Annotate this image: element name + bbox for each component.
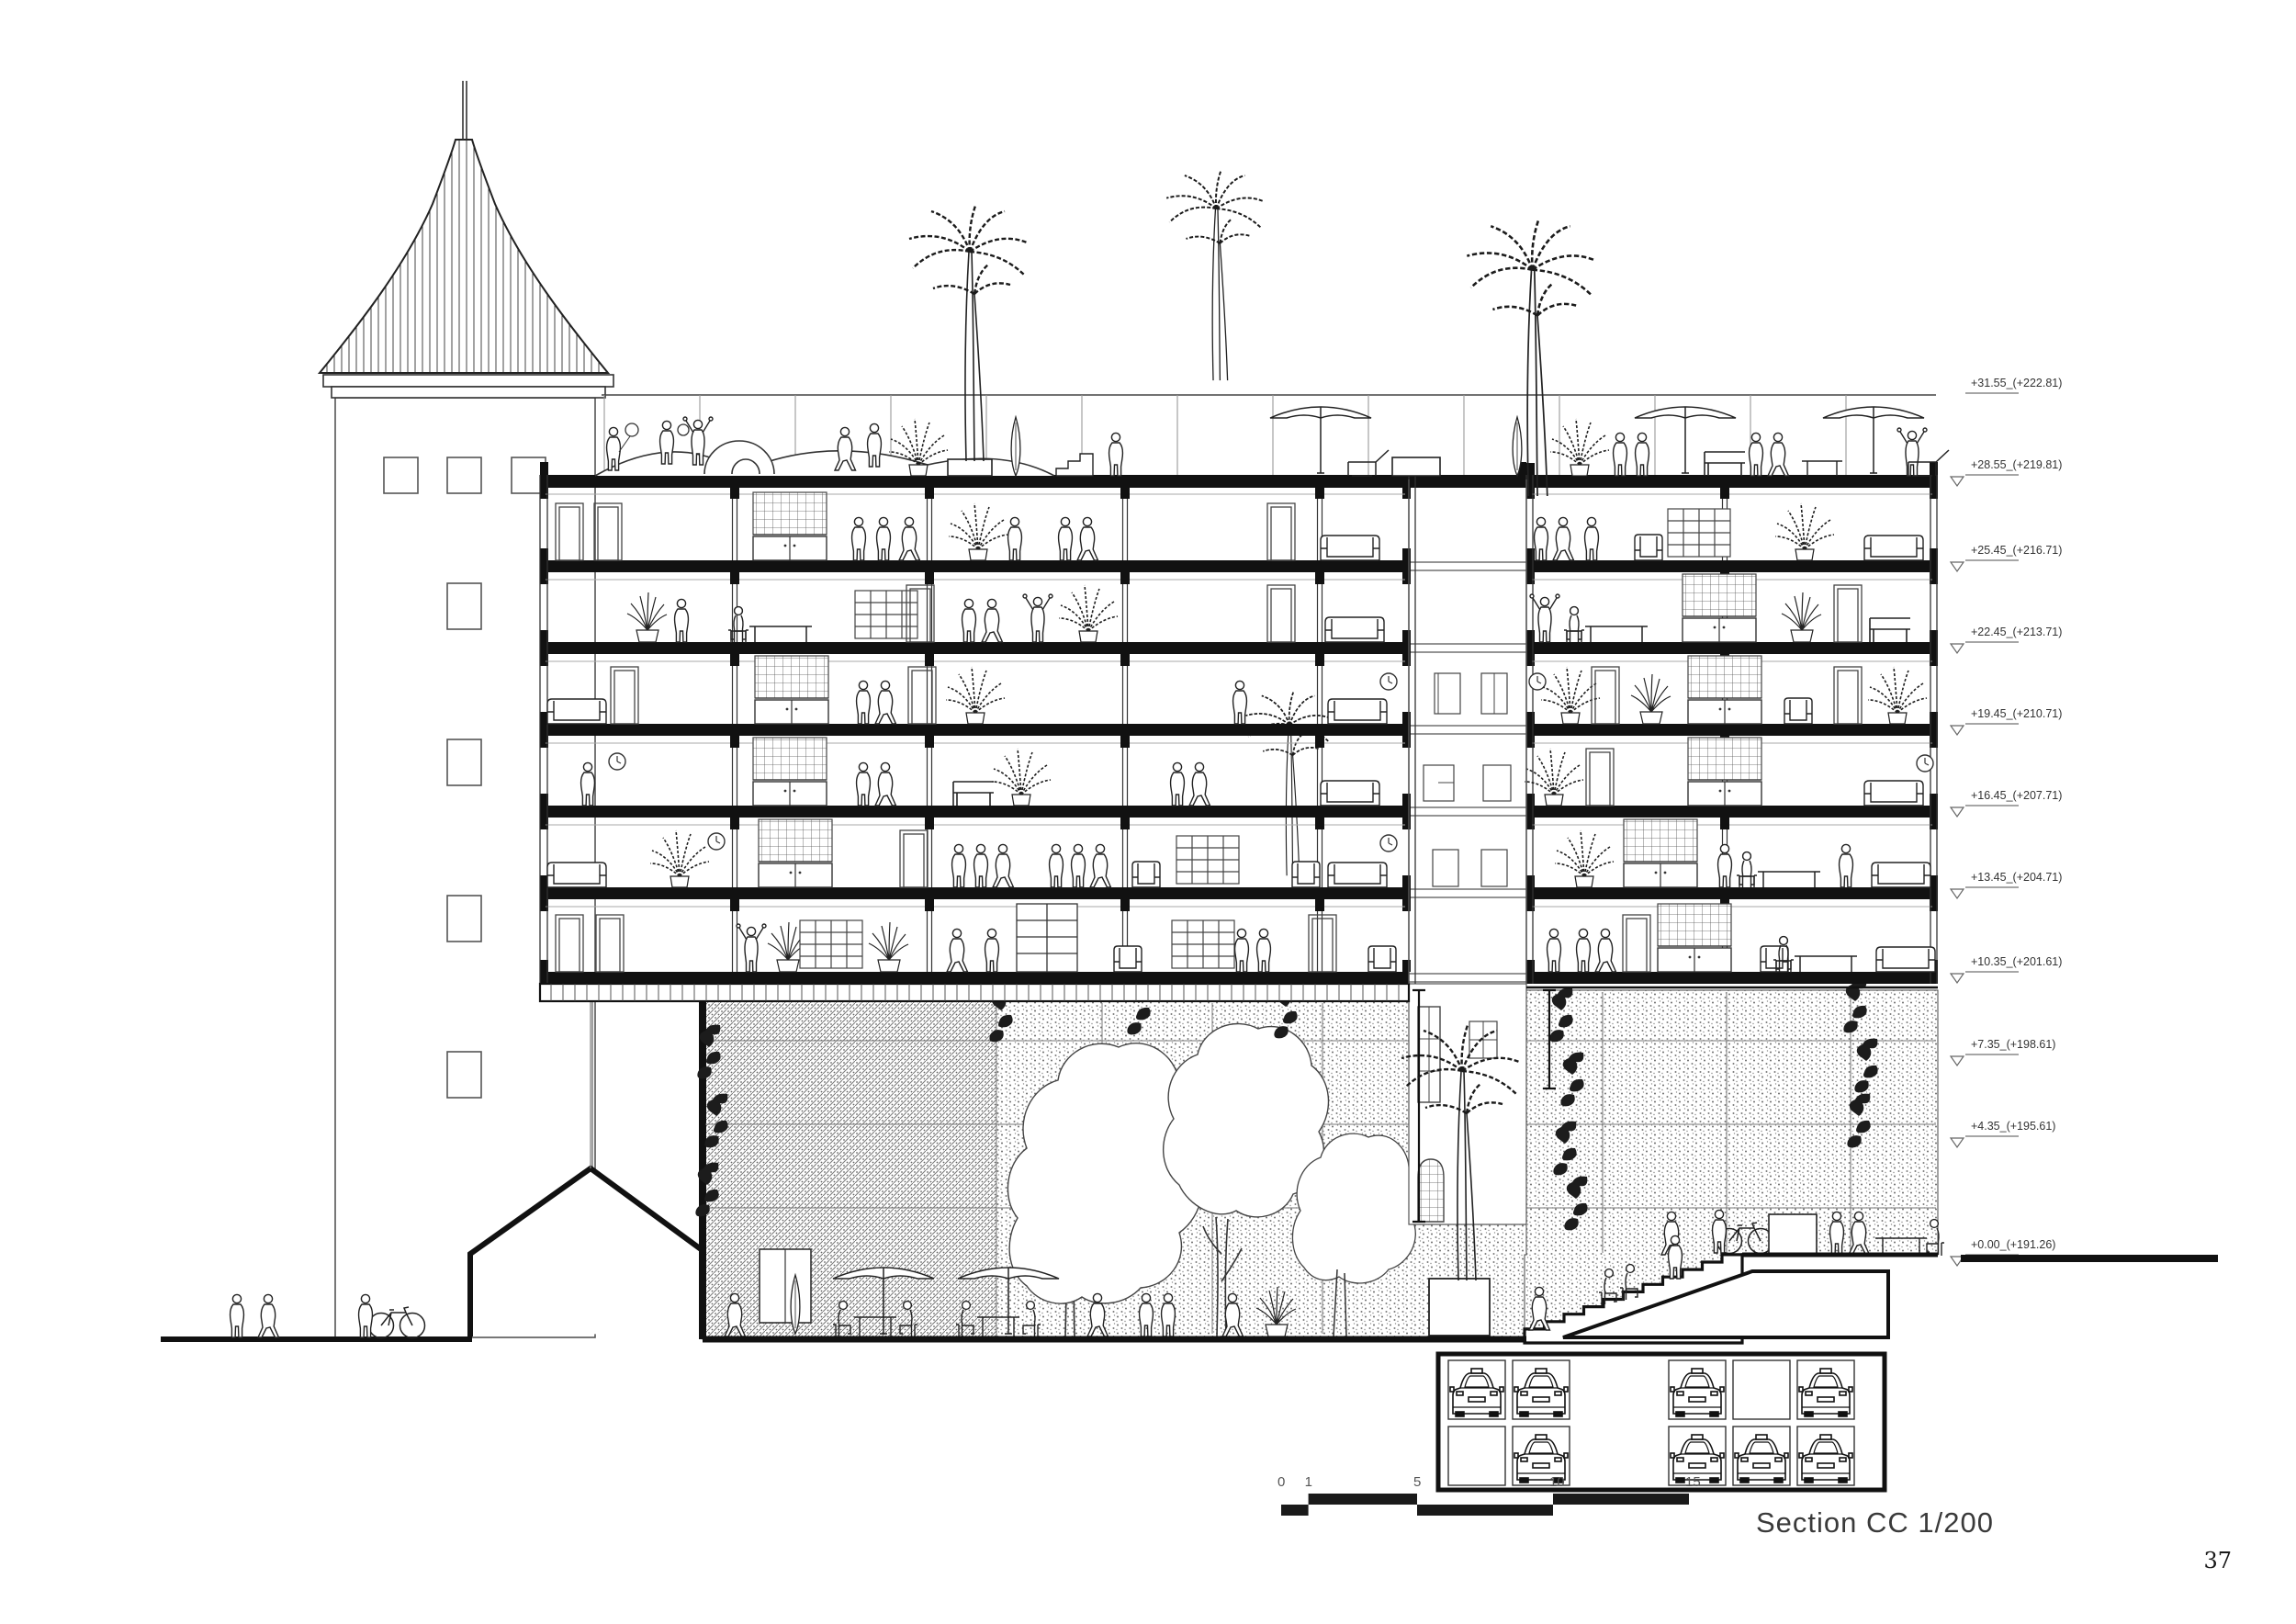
doorF-symbol (1592, 667, 1619, 724)
floor-slab (540, 806, 1409, 818)
personW-symbol (1090, 844, 1111, 887)
armch-symbol (1635, 535, 1662, 560)
sofa-symbol (1321, 781, 1379, 806)
sofa-symbol (1321, 536, 1379, 560)
elevation-label: +31.55_(+222.81) (1971, 377, 2062, 389)
agave-symbol (1631, 674, 1671, 724)
clockS-symbol (1380, 673, 1397, 690)
kit-symbol (753, 738, 827, 806)
datum-triangle-icon (1951, 562, 1964, 571)
core-strip (1409, 479, 1526, 984)
personS-symbol (1233, 681, 1247, 724)
armch-symbol (1784, 698, 1812, 724)
floor-slab (1526, 887, 1938, 899)
datum-triangle-icon (1951, 889, 1964, 898)
armch-symbol (1292, 862, 1320, 887)
drawing-sheet: +31.55_(+222.81)+28.55_(+219.81)+25.45_(… (0, 0, 2296, 1624)
personS-symbol (1235, 929, 1249, 972)
doorF-symbol (1623, 915, 1650, 972)
sofa-symbol (1328, 863, 1387, 887)
personA-symbol (1023, 594, 1052, 642)
personW-symbol (1077, 517, 1098, 560)
personS-symbol (1718, 844, 1732, 887)
scale-tick-label: 1 (1305, 1474, 1312, 1490)
doorF-symbol (908, 667, 936, 724)
doorF-symbol (594, 503, 622, 560)
winG-symbol (1172, 920, 1234, 968)
elevation-label: +19.45_(+210.71) (1971, 707, 2062, 720)
personW-symbol (947, 929, 968, 972)
floor-slab (540, 887, 1409, 899)
clockS-symbol (609, 753, 625, 770)
parking-stall (1448, 1427, 1505, 1485)
datum-triangle-icon (1951, 477, 1964, 486)
personW-symbol (899, 517, 920, 560)
doorF-symbol (1834, 667, 1862, 724)
elevation-markers: +31.55_(+222.81)+28.55_(+219.81)+25.45_(… (1951, 377, 2218, 1266)
doorF-symbol (906, 585, 934, 642)
scale-tick-label: 10 (1549, 1474, 1565, 1490)
scale-tick-label: 0 (1277, 1474, 1285, 1490)
fern-symbol (946, 667, 1005, 724)
elevation-label: +0.00_(+191.26) (1971, 1238, 2055, 1251)
scale-bar-segment (1281, 1505, 1309, 1516)
tower-window (384, 457, 418, 493)
parking-stall (1733, 1360, 1790, 1419)
fern-symbol (992, 749, 1051, 806)
personS-symbol (985, 929, 999, 972)
section-drawing: +31.55_(+222.81)+28.55_(+219.81)+25.45_(… (0, 0, 2296, 1624)
tower-window (447, 583, 481, 629)
elevation-marker: +7.35_(+198.61) (1951, 1038, 2055, 1066)
doorF-symbol (1834, 585, 1862, 642)
doorF-symbol (1267, 503, 1295, 560)
personW-symbol (1553, 517, 1574, 560)
winG-symbol (800, 920, 862, 968)
roof-people-right (1550, 407, 1949, 476)
personS-symbol (1535, 517, 1548, 560)
roof-terrace (595, 171, 1949, 496)
elevation-label: +10.35_(+201.61) (1971, 955, 2062, 968)
arched-window (1418, 1159, 1444, 1222)
personS-symbol (1257, 929, 1271, 972)
tower-window (447, 739, 481, 785)
personS-symbol (962, 599, 976, 642)
personS-symbol (1548, 929, 1561, 972)
personW-symbol (993, 844, 1014, 887)
tower-window (447, 457, 481, 493)
elevation-label: +4.35_(+195.61) (1971, 1120, 2055, 1133)
floor-slab (540, 972, 1409, 984)
datum-triangle-icon (1951, 1138, 1964, 1147)
palm-tree (909, 206, 1027, 461)
agave-symbol (627, 592, 667, 642)
palm-tree (1467, 220, 1593, 496)
ground-line (1961, 1255, 2218, 1262)
elevation-marker: +13.45_(+204.71) (1951, 871, 2062, 898)
elevation-label: +22.45_(+213.71) (1971, 626, 2062, 638)
clockS-symbol (708, 833, 725, 850)
floor-slab (1526, 642, 1938, 654)
elevation-marker: +22.45_(+213.71) (1951, 626, 2062, 653)
tower-roof (320, 140, 608, 373)
personS-symbol (852, 517, 866, 560)
datum-triangle-icon (1951, 726, 1964, 735)
elevation-marker: +0.00_(+191.26) (1951, 1238, 2218, 1266)
armch-symbol (1761, 946, 1788, 972)
personS-symbol (1577, 929, 1591, 972)
soffit-band (540, 984, 1409, 1001)
elevation-marker: +4.35_(+195.61) (1951, 1120, 2055, 1147)
personS-symbol (857, 762, 871, 806)
fern-symbol (1059, 585, 1118, 642)
elevation-marker: +25.45_(+216.71) (1951, 544, 2062, 571)
floor-slab (1526, 806, 1938, 818)
personW-symbol (1595, 929, 1616, 972)
kit-symbol (1683, 574, 1756, 642)
doorF-symbol (1267, 585, 1295, 642)
kit-symbol (1688, 656, 1761, 724)
personS-symbol (1840, 844, 1853, 887)
sofa-symbol (547, 863, 606, 887)
kit-symbol (1688, 738, 1761, 806)
doorF-symbol (596, 915, 624, 972)
winG-symbol (1176, 836, 1239, 884)
tower-window (447, 1052, 481, 1098)
tableG-symbol (1737, 852, 1820, 888)
personW-symbol (875, 681, 896, 724)
elevation-label: +7.35_(+198.61) (1971, 1038, 2055, 1051)
personS-symbol (1171, 762, 1185, 806)
armch-symbol (1114, 946, 1142, 972)
floor-slab (540, 724, 1409, 736)
benchS-symbol (1870, 618, 1910, 642)
doorF-symbol (611, 667, 638, 724)
kit-symbol (1658, 904, 1731, 972)
elevation-label: +16.45_(+207.71) (1971, 789, 2062, 802)
floor-slab (540, 475, 1938, 488)
personW-symbol (875, 762, 896, 806)
scale-bar-segment (1417, 1505, 1553, 1516)
datum-triangle-icon (1951, 974, 1964, 983)
kit-symbol (759, 819, 832, 887)
scale-tick-label: 5 (1413, 1474, 1421, 1490)
fern-symbol (1775, 503, 1834, 560)
personS-symbol (877, 517, 891, 560)
personA-symbol (737, 924, 766, 972)
fern-symbol (1555, 830, 1614, 887)
elevation-marker: +31.55_(+222.81) (1965, 377, 2062, 393)
personS-symbol (675, 599, 689, 642)
tableG-symbol (1564, 607, 1648, 643)
shelfU-symbol (1017, 904, 1077, 972)
armch-symbol (1368, 946, 1396, 972)
roof-umbrella (1270, 407, 1371, 473)
play-dome (704, 441, 774, 474)
sofa-symbol (1872, 863, 1930, 887)
scale-bar-segment (1553, 1494, 1689, 1505)
datum-triangle-icon (1951, 1056, 1964, 1066)
sofa-symbol (1864, 536, 1923, 560)
personW-symbol (982, 599, 1003, 642)
personS-symbol (974, 844, 988, 887)
floor-slab (1526, 560, 1938, 572)
personS-symbol (1059, 517, 1073, 560)
sofa-symbol (1864, 781, 1923, 806)
elevation-marker: +10.35_(+201.61) (1951, 955, 2062, 983)
elevation-label: +28.55_(+219.81) (1971, 458, 2062, 471)
kit-symbol (753, 492, 827, 560)
winG-symbol (855, 591, 917, 638)
fern-symbol (1868, 667, 1927, 724)
elevation-label: +25.45_(+216.71) (1971, 544, 2062, 557)
agave-symbol (1782, 592, 1821, 642)
personS-symbol (1050, 844, 1064, 887)
personW-symbol (1189, 762, 1210, 806)
personS-symbol (1585, 517, 1599, 560)
scale-tick-label: 15 (1685, 1474, 1701, 1490)
fern-symbol (949, 503, 1007, 560)
car-park (1438, 1354, 1885, 1490)
kit-symbol (755, 656, 828, 724)
benchS-symbol (953, 782, 994, 806)
fern-symbol (650, 830, 709, 887)
elevation-label: +13.45_(+204.71) (1971, 871, 2062, 884)
doorF-symbol (900, 830, 928, 887)
sofa-symbol (1328, 699, 1387, 724)
elevation-marker: +19.45_(+210.71) (1951, 707, 2062, 735)
floor-slab (1526, 724, 1938, 736)
agave-symbol (869, 922, 908, 972)
personS-symbol (952, 844, 966, 887)
floor-slab (540, 560, 1409, 572)
clockS-symbol (1380, 835, 1397, 851)
personS-symbol (1072, 844, 1086, 887)
drawing-title: Section CC 1/200 (1756, 1506, 1994, 1539)
personS-symbol (1008, 517, 1022, 560)
page-number: 37 (2203, 1548, 2232, 1573)
datum-triangle-icon (1951, 807, 1964, 817)
sofa-symbol (547, 699, 606, 724)
armch-symbol (1132, 862, 1160, 887)
kit-symbol (1624, 819, 1697, 887)
floor-slab (1526, 972, 1938, 984)
tableG-symbol (728, 607, 812, 643)
datum-triangle-icon (1951, 644, 1964, 653)
winG-symbol (1668, 509, 1730, 557)
scale-bar-segment (1309, 1494, 1417, 1505)
elevation-marker: +16.45_(+207.71) (1951, 789, 2062, 817)
tower-finial (463, 81, 467, 140)
sofa-symbol (1876, 947, 1935, 972)
floor-slab (540, 642, 1409, 654)
elevation-marker: +28.55_(+219.81) (1951, 458, 2062, 486)
personS-symbol (857, 681, 871, 724)
sofa-symbol (1325, 617, 1384, 642)
doorF-symbol (1586, 749, 1614, 806)
tower-window (447, 896, 481, 942)
clockS-symbol (1917, 755, 1933, 772)
